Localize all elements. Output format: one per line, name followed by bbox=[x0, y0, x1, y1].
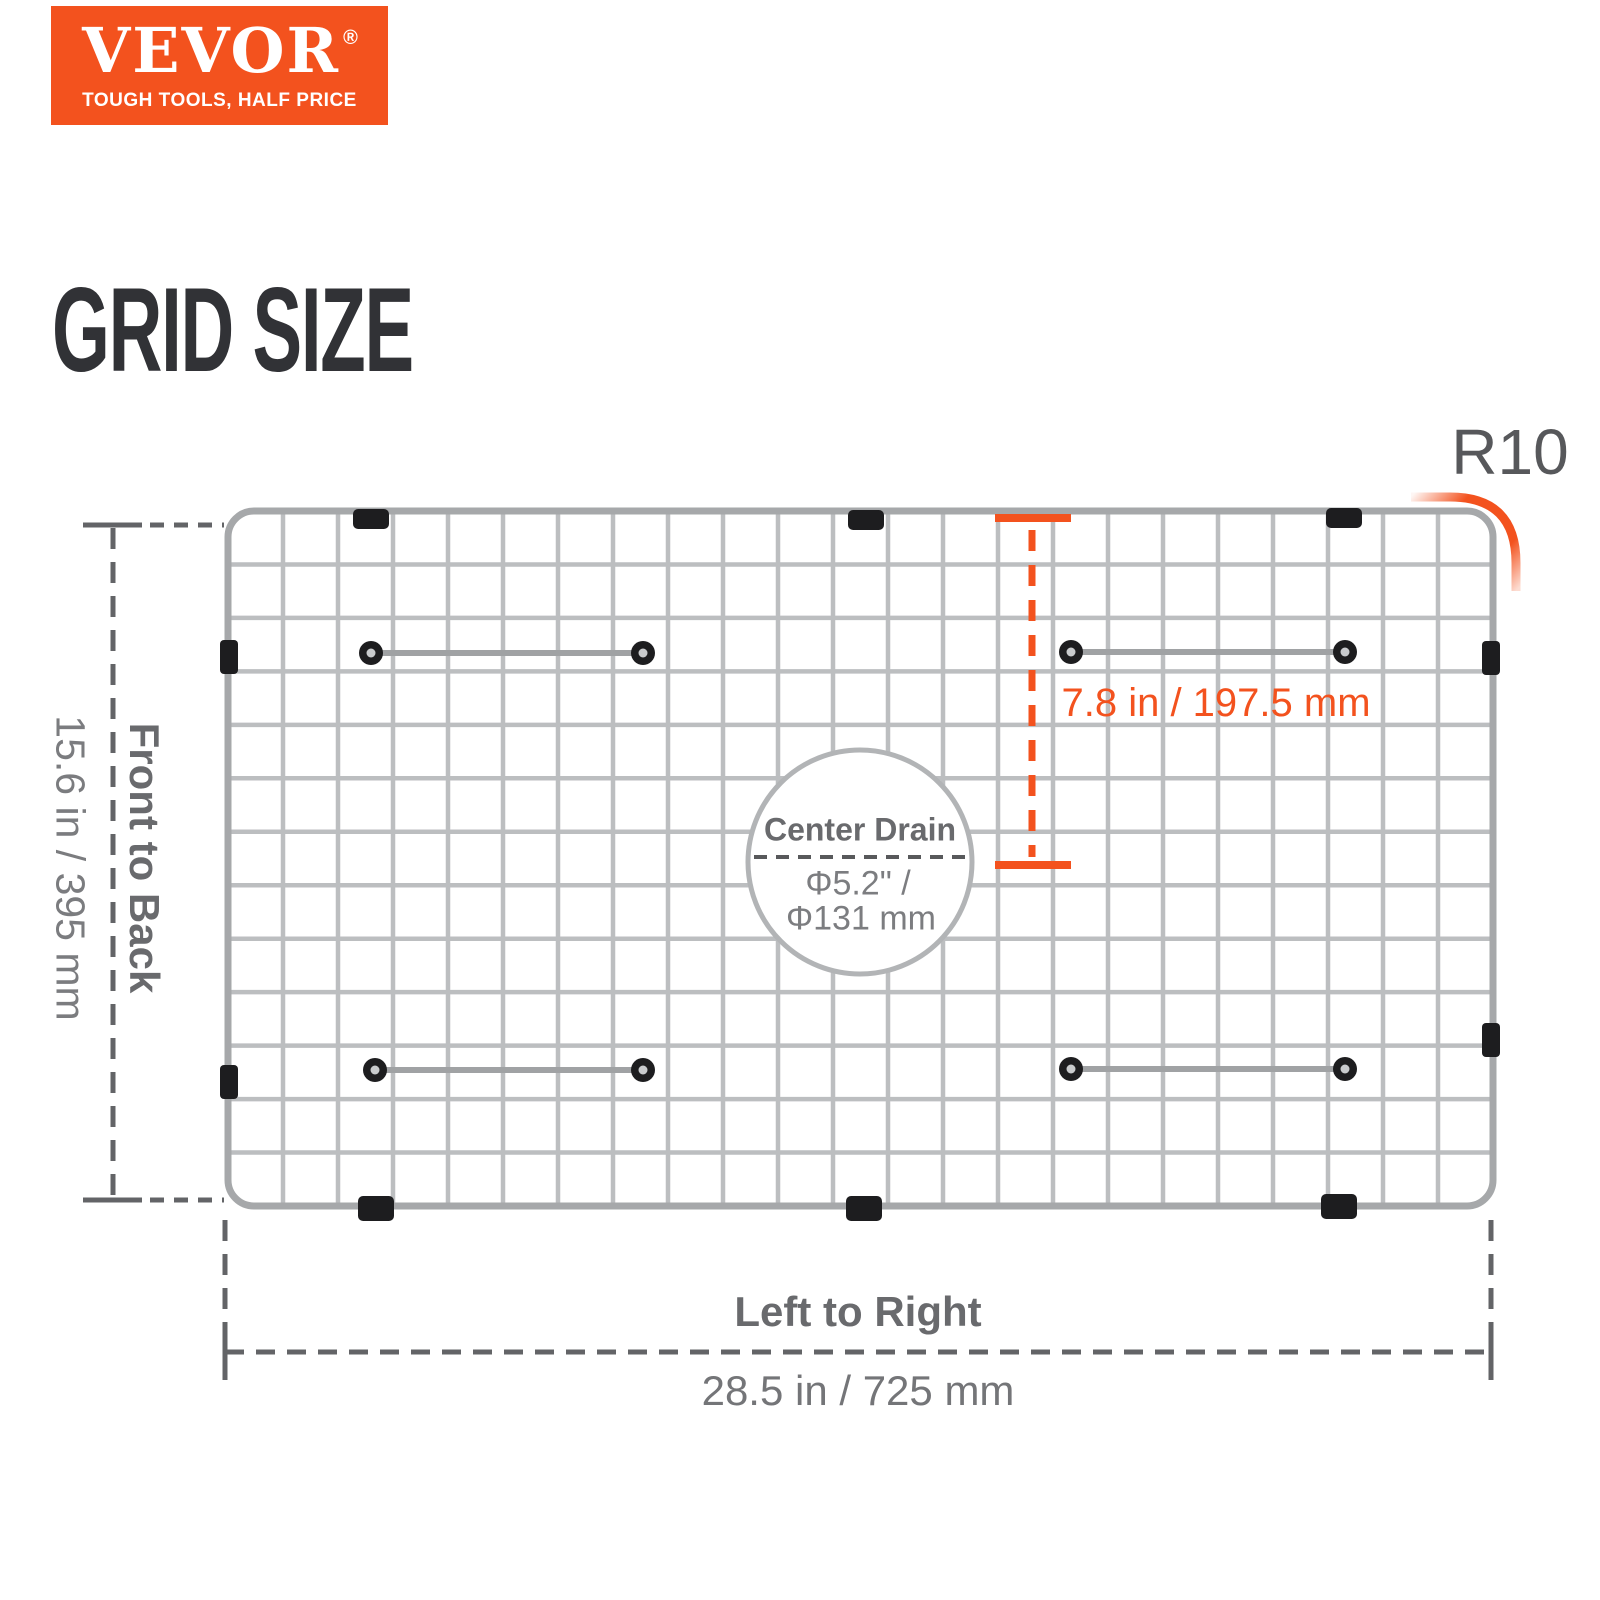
left-to-right-label: Left to Right bbox=[734, 1289, 981, 1335]
drain-offset-value: 7.8 in / 197.5 mm bbox=[1061, 681, 1370, 725]
handle-top-left bbox=[359, 641, 655, 665]
center-drain-diameter-mm: Φ131 mm bbox=[786, 900, 936, 937]
handle-top-right bbox=[1059, 640, 1357, 664]
drain-offset-dimension bbox=[995, 518, 1071, 865]
front-to-back-value: 15.6 in / 395 mm bbox=[50, 715, 91, 1020]
handle-bottom-right bbox=[1059, 1057, 1357, 1081]
front-to-back-label: Front to Back bbox=[123, 723, 165, 994]
corner-radius-label: R10 bbox=[1451, 417, 1568, 487]
product-dimension-diagram: VEVOR® TOUGH TOOLS, HALF PRICE GRID SIZE bbox=[0, 0, 1600, 1600]
center-drain-diameter-inches: Φ5.2" / bbox=[805, 865, 910, 902]
left-to-right-value: 28.5 in / 725 mm bbox=[702, 1368, 1015, 1414]
sink-grid-diagram bbox=[0, 0, 1600, 1600]
center-drain-label: Center Drain bbox=[764, 812, 956, 847]
